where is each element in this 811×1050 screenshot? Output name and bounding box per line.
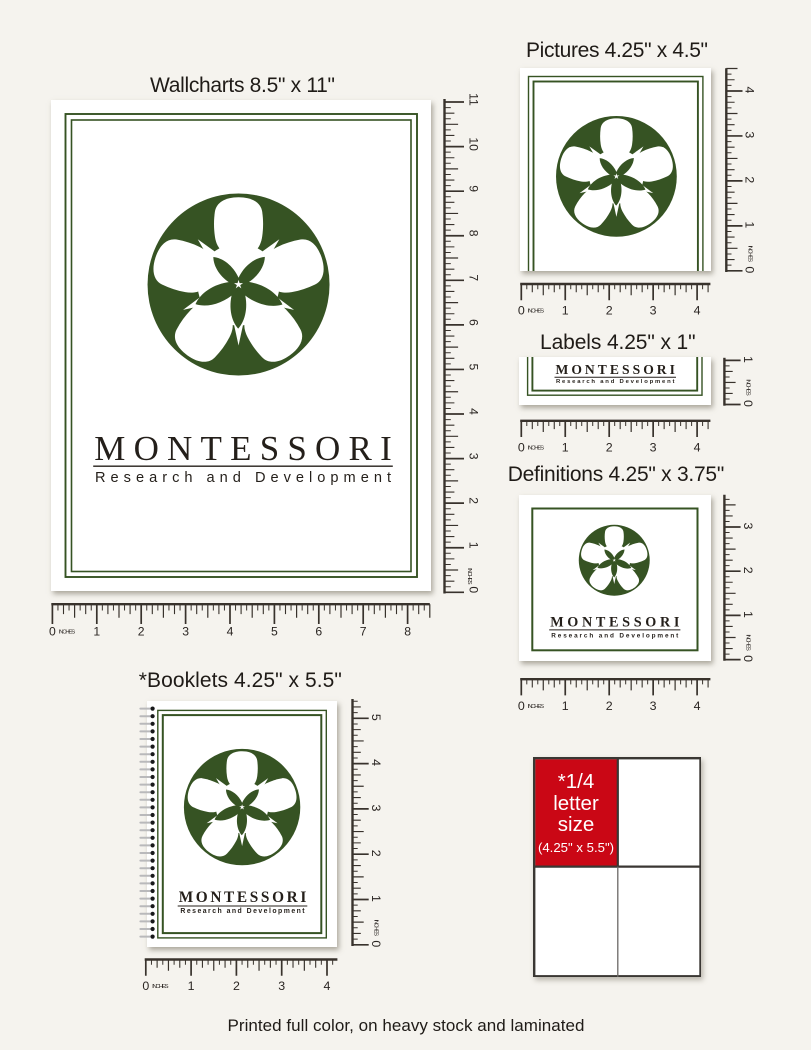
svg-text:4: 4 — [694, 440, 701, 454]
svg-text:9: 9 — [467, 185, 481, 192]
svg-text:4: 4 — [694, 699, 701, 713]
svg-text:0: 0 — [741, 400, 755, 407]
svg-text:4: 4 — [743, 87, 757, 94]
svg-text:6: 6 — [315, 625, 322, 639]
svg-text:INCHES: INCHES — [466, 568, 472, 585]
svg-text:4: 4 — [324, 979, 331, 993]
svg-text:2: 2 — [606, 440, 613, 454]
svg-text:INCHES: INCHES — [152, 984, 169, 990]
svg-text:0: 0 — [518, 699, 525, 713]
svg-text:4: 4 — [227, 625, 234, 639]
svg-text:3: 3 — [741, 523, 755, 530]
svg-text:11: 11 — [467, 93, 481, 106]
svg-text:3: 3 — [650, 304, 657, 318]
svg-text:0: 0 — [142, 979, 149, 993]
svg-text:2: 2 — [138, 625, 145, 639]
svg-text:2: 2 — [743, 176, 757, 183]
svg-text:1: 1 — [741, 611, 755, 618]
svg-text:3: 3 — [278, 979, 285, 993]
svg-text:1: 1 — [467, 542, 481, 549]
svg-text:3: 3 — [467, 453, 481, 460]
svg-text:5: 5 — [467, 364, 481, 371]
svg-text:INCHES: INCHES — [59, 630, 76, 636]
svg-text:0: 0 — [518, 304, 525, 318]
svg-text:Research and Development: Research and Development — [551, 633, 679, 640]
svg-text:Research and Development: Research and Development — [556, 379, 675, 385]
svg-text:4: 4 — [467, 408, 481, 415]
svg-text:4: 4 — [369, 759, 383, 766]
svg-text:8: 8 — [404, 625, 411, 639]
svg-text:3: 3 — [743, 131, 757, 138]
svg-text:1: 1 — [562, 440, 569, 454]
svg-text:4: 4 — [694, 304, 701, 318]
svg-text:2: 2 — [233, 979, 240, 993]
svg-text:5: 5 — [369, 714, 383, 721]
svg-text:0: 0 — [518, 440, 525, 454]
svg-text:MONTESSORI: MONTESSORI — [550, 614, 680, 630]
svg-text:Definitions 4.25" x 3.75": Definitions 4.25" x 3.75" — [508, 463, 725, 486]
svg-text:MONTESSORI: MONTESSORI — [555, 362, 675, 377]
svg-text:2: 2 — [606, 304, 613, 318]
svg-text:7: 7 — [360, 625, 367, 639]
svg-text:*Booklets 4.25" x 5.5": *Booklets 4.25" x 5.5" — [139, 669, 342, 692]
svg-text:Pictures 4.25" x 4.5": Pictures 4.25" x 4.5" — [526, 39, 708, 62]
svg-text:3: 3 — [369, 804, 383, 811]
svg-text:1: 1 — [188, 979, 195, 993]
svg-text:10: 10 — [467, 137, 481, 151]
svg-text:2: 2 — [369, 850, 383, 857]
svg-text:1: 1 — [562, 699, 569, 713]
svg-text:5: 5 — [271, 625, 278, 639]
svg-text:0: 0 — [369, 940, 383, 947]
svg-text:INCHES: INCHES — [528, 309, 545, 315]
svg-text:6: 6 — [467, 319, 481, 326]
svg-text:Labels 4.25" x 1": Labels 4.25" x 1" — [540, 331, 696, 354]
svg-text:0: 0 — [743, 266, 757, 273]
svg-text:INCHES: INCHES — [528, 704, 545, 710]
svg-text:0: 0 — [49, 625, 56, 639]
svg-text:3: 3 — [182, 625, 189, 639]
svg-text:8: 8 — [467, 230, 481, 237]
svg-text:INCHES: INCHES — [744, 379, 750, 396]
svg-text:2: 2 — [606, 699, 613, 713]
svg-text:Wallcharts 8.5" x 11": Wallcharts 8.5" x 11" — [150, 74, 335, 97]
svg-text:2: 2 — [741, 567, 755, 574]
svg-text:2: 2 — [467, 497, 481, 504]
svg-text:1: 1 — [562, 304, 569, 318]
svg-text:1: 1 — [93, 625, 100, 639]
svg-text:7: 7 — [467, 274, 481, 281]
svg-text:INCHES: INCHES — [528, 445, 545, 451]
svg-text:Research and Development: Research and Development — [180, 908, 305, 915]
svg-text:Printed full color, on heavy s: Printed full color, on heavy stock and l… — [228, 1016, 585, 1035]
svg-text:0: 0 — [467, 586, 481, 593]
svg-text:1: 1 — [743, 221, 757, 228]
svg-text:MONTESSORI: MONTESSORI — [179, 889, 307, 906]
svg-text:1: 1 — [369, 895, 383, 902]
svg-text:0: 0 — [741, 655, 755, 662]
svg-text:INCHES: INCHES — [746, 246, 752, 263]
svg-text:1: 1 — [741, 356, 755, 363]
svg-text:3: 3 — [650, 699, 657, 713]
svg-text:INCHES: INCHES — [373, 920, 379, 937]
svg-text:3: 3 — [650, 440, 657, 454]
svg-text:INCHES: INCHES — [744, 634, 750, 651]
